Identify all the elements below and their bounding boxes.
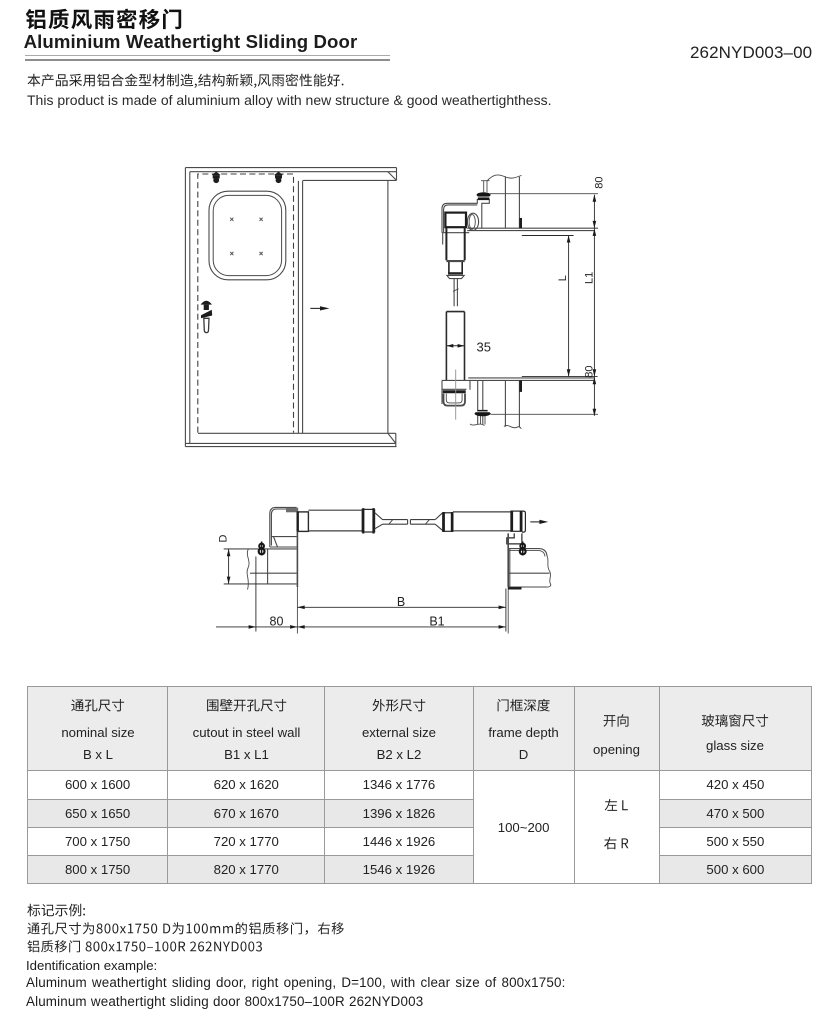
svg-text:80: 80 (270, 615, 284, 629)
svg-text:B: B (397, 595, 405, 609)
svg-text:D: D (218, 535, 230, 543)
svg-text:L1: L1 (584, 272, 596, 284)
svg-text:35: 35 (477, 340, 491, 355)
svg-text:80: 80 (593, 176, 605, 188)
svg-text:L: L (557, 275, 569, 281)
svg-text:B1: B1 (429, 615, 444, 629)
svg-text:80: 80 (584, 366, 596, 378)
